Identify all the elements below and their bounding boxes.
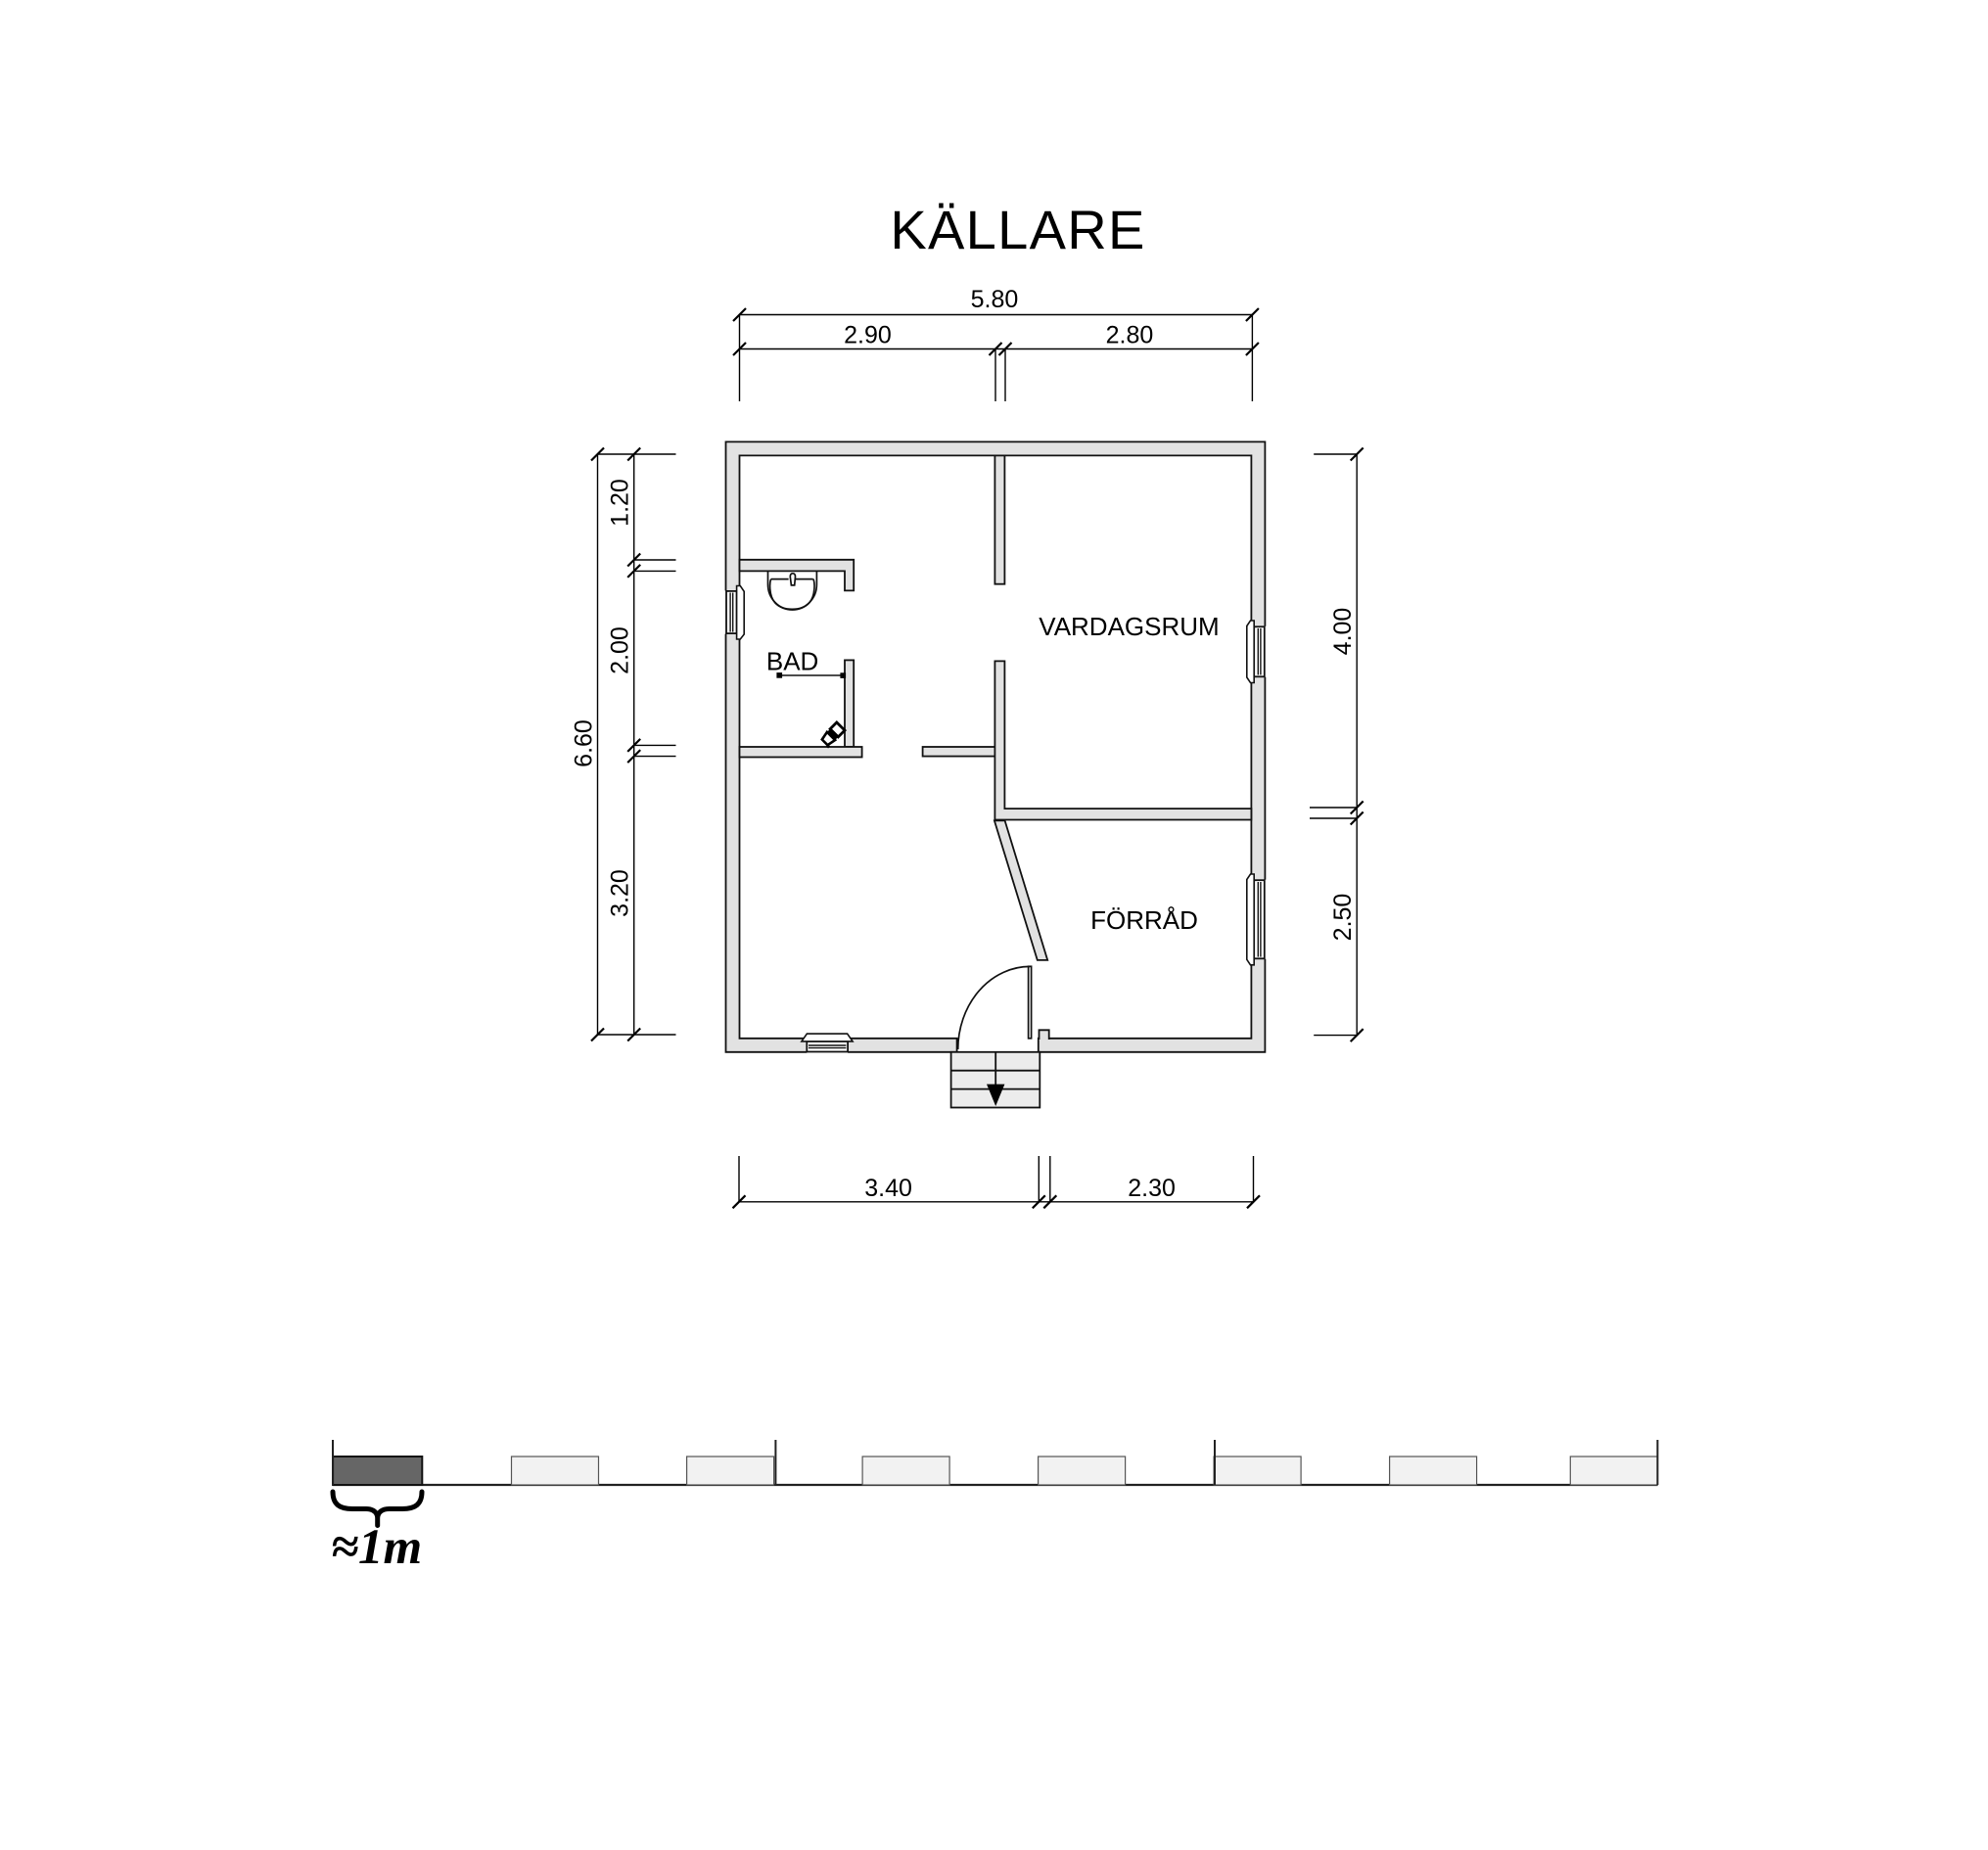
- svg-text:2.00: 2.00: [607, 626, 634, 674]
- svg-text:KÄLLARE: KÄLLARE: [890, 199, 1145, 260]
- svg-text:1.20: 1.20: [607, 479, 634, 527]
- svg-text:4.00: 4.00: [1329, 608, 1357, 656]
- svg-text:FÖRRÅD: FÖRRÅD: [1090, 905, 1198, 935]
- svg-text:2.30: 2.30: [1128, 1175, 1176, 1202]
- svg-text:2.90: 2.90: [844, 322, 892, 349]
- svg-text:≈1m: ≈1m: [331, 1520, 422, 1575]
- svg-text:2.50: 2.50: [1329, 894, 1357, 942]
- svg-text:6.60: 6.60: [571, 719, 598, 767]
- svg-text:BAD: BAD: [766, 647, 818, 676]
- svg-text:3.40: 3.40: [864, 1175, 912, 1202]
- svg-text:3.20: 3.20: [607, 869, 634, 917]
- svg-text:5.80: 5.80: [971, 286, 1019, 313]
- svg-text:VARDAGSRUM: VARDAGSRUM: [1039, 612, 1219, 641]
- svg-text:2.80: 2.80: [1106, 322, 1154, 349]
